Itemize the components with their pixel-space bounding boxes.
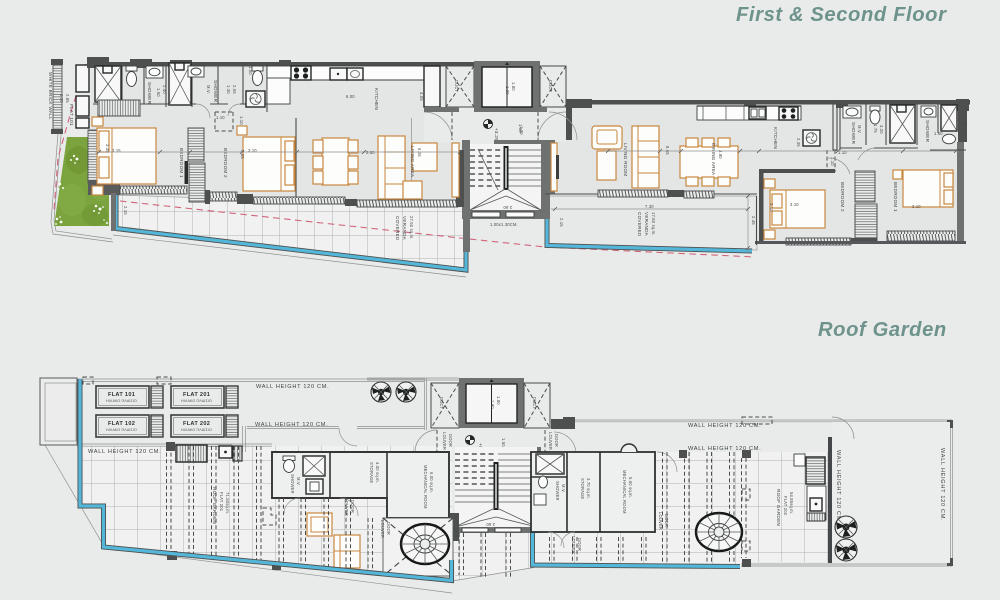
svg-text:SHOWER: SHOWER xyxy=(213,80,218,103)
svg-text:LOUVER: LOUVER xyxy=(548,432,553,450)
svg-text:1.30: 1.30 xyxy=(226,85,231,94)
svg-text:BEDROOM 1: BEDROOM 1 xyxy=(893,182,898,212)
svg-text:WALL HEIGHT 120 CM.: WALL HEIGHT 120 CM. xyxy=(939,448,945,521)
svg-text:5.60 sq.m.: 5.60 sq.m. xyxy=(628,477,633,498)
svg-text:DUCT: DUCT xyxy=(548,80,553,92)
svg-text:2.40: 2.40 xyxy=(162,85,167,94)
svg-text:LOUVER: LOUVER xyxy=(442,432,447,450)
svg-text:WALL HEIGHT 120 CM.: WALL HEIGHT 120 CM. xyxy=(256,384,329,390)
svg-text:2.85: 2.85 xyxy=(65,94,70,103)
svg-text:FLAT 202: FLAT 202 xyxy=(783,496,788,516)
svg-text:Roof Garden: Roof Garden xyxy=(818,319,947,341)
svg-text:4.05: 4.05 xyxy=(419,92,424,101)
svg-text:WALL HEIGHT 120 CM.: WALL HEIGHT 120 CM. xyxy=(255,422,328,428)
svg-text:ΗΛΙΑΚΟ ΠΛΑΙΣΙΟ: ΗΛΙΑΚΟ ΠΛΑΙΣΙΟ xyxy=(181,428,212,432)
svg-text:ROOF GARDEN: ROOF GARDEN xyxy=(776,489,781,526)
svg-text:+3.25: +3.25 xyxy=(494,128,499,141)
svg-text:1.50: 1.50 xyxy=(501,438,506,447)
svg-text:KITCHEN: KITCHEN xyxy=(374,88,379,110)
svg-text:DUCT: DUCT xyxy=(439,397,444,409)
svg-text:1.00: 1.00 xyxy=(248,66,253,75)
svg-text:1.80: 1.80 xyxy=(511,82,516,91)
svg-text:6.00: 6.00 xyxy=(346,94,355,99)
svg-text:SHOWER: SHOWER xyxy=(290,474,295,494)
svg-text:DUCT: DUCT xyxy=(454,80,459,92)
svg-text:1.10: 1.10 xyxy=(239,116,244,125)
svg-text:8.65: 8.65 xyxy=(665,146,670,155)
svg-text:MECHANICAL ROOM: MECHANICAL ROOM xyxy=(423,465,428,509)
svg-text:27.50 sq.m.: 27.50 sq.m. xyxy=(409,216,414,240)
svg-text:3.10: 3.10 xyxy=(769,203,774,212)
svg-text:FLAT 201: FLAT 201 xyxy=(219,492,224,512)
svg-text:7.30: 7.30 xyxy=(645,204,654,209)
svg-text:71.50sq.m.: 71.50sq.m. xyxy=(225,492,230,514)
svg-text:2.60: 2.60 xyxy=(486,522,495,527)
svg-text:3.10: 3.10 xyxy=(790,202,799,207)
svg-text:WALL HEIGHT 120 CM.: WALL HEIGHT 120 CM. xyxy=(88,449,161,455)
svg-text:First & Second Floor: First & Second Floor xyxy=(736,4,947,26)
svg-text:LIVING ROOM: LIVING ROOM xyxy=(623,143,628,176)
svg-text:FLAT 201: FLAT 201 xyxy=(183,392,210,398)
svg-text:2.65: 2.65 xyxy=(232,85,237,94)
svg-text:2.15: 2.15 xyxy=(123,206,128,215)
svg-text:ΗΛΙΑΚΟ ΠΛΑΙΣΙΟ: ΗΛΙΑΚΟ ΠΛΑΙΣΙΟ xyxy=(181,399,212,403)
svg-text:SHOWER: SHOWER xyxy=(851,122,856,145)
svg-text:54.85sq.m.: 54.85sq.m. xyxy=(789,492,794,514)
svg-text:ΗΛΙΑΚΟ ΠΛΑΙΣΙΟ: ΗΛΙΑΚΟ ΠΛΑΙΣΙΟ xyxy=(106,428,137,432)
svg-text:LOUVER: LOUVER xyxy=(380,520,385,538)
svg-text:1.35: 1.35 xyxy=(963,118,968,127)
svg-text:FLAT 101: FLAT 101 xyxy=(108,392,135,398)
svg-text:2.15: 2.15 xyxy=(559,218,564,227)
svg-text:3.90: 3.90 xyxy=(718,150,723,159)
svg-text:M.V.: M.V. xyxy=(206,85,211,94)
svg-text:1.00x1.30CM.: 1.00x1.30CM. xyxy=(490,222,518,227)
svg-text:BEDROOM 1: BEDROOM 1 xyxy=(179,148,184,178)
svg-text:M.V.: M.V. xyxy=(561,484,566,493)
svg-text:WALL HEIGHT 120 CM.: WALL HEIGHT 120 CM. xyxy=(688,423,761,429)
svg-text:3.10: 3.10 xyxy=(912,204,921,209)
svg-text:M.V.: M.V. xyxy=(857,125,862,134)
svg-text:3.20: 3.20 xyxy=(879,125,884,134)
svg-text:WALL HEIGHT 120 CM.: WALL HEIGHT 120 CM. xyxy=(835,450,841,523)
svg-text:DOOR: DOOR xyxy=(554,434,559,447)
svg-text:1.60: 1.60 xyxy=(934,131,943,136)
svg-text:VERANDA: VERANDA xyxy=(402,216,407,241)
svg-text:STORAGE: STORAGE xyxy=(369,462,374,483)
svg-text:1.30: 1.30 xyxy=(519,126,524,135)
svg-text:STORAGE: STORAGE xyxy=(580,478,585,499)
svg-text:1.80: 1.80 xyxy=(496,396,501,405)
svg-text:SHOWER: SHOWER xyxy=(925,120,930,143)
svg-text:BEDROOM 2: BEDROOM 2 xyxy=(840,182,845,212)
svg-text:LOUVER: LOUVER xyxy=(571,536,576,554)
svg-text:2.45: 2.45 xyxy=(751,216,756,225)
svg-text:COVERED: COVERED xyxy=(395,216,400,241)
svg-text:KITCHEN: KITCHEN xyxy=(773,127,778,149)
svg-text:LIVING AREA: LIVING AREA xyxy=(410,146,415,178)
svg-text:DOOR: DOOR xyxy=(577,538,582,551)
svg-text:1.90: 1.90 xyxy=(505,86,510,95)
svg-text:DUCT: DUCT xyxy=(532,397,537,409)
svg-text:1.50: 1.50 xyxy=(156,88,161,97)
svg-text:6.05: 6.05 xyxy=(417,148,422,157)
svg-text:FLAT 102: FLAT 102 xyxy=(108,421,135,427)
svg-text:DOOR: DOOR xyxy=(448,434,453,447)
svg-text:1.75: 1.75 xyxy=(873,124,878,133)
svg-text:COVERED: COVERED xyxy=(637,212,642,237)
svg-text:6.00 sq.m.: 6.00 sq.m. xyxy=(429,472,434,493)
svg-text:M.V.: M.V. xyxy=(296,477,301,486)
svg-text:17.80 sq.m.: 17.80 sq.m. xyxy=(651,212,656,236)
svg-text:5.80: 5.80 xyxy=(366,150,375,155)
svg-text:4.00 sq.m.: 4.00 sq.m. xyxy=(375,462,380,483)
svg-text:DINING AREA: DINING AREA xyxy=(711,143,716,176)
svg-text:DOOR: DOOR xyxy=(386,522,391,535)
svg-text:2.35: 2.35 xyxy=(796,138,801,147)
svg-text:2.60: 2.60 xyxy=(503,205,512,210)
svg-text:SHOWER: SHOWER xyxy=(555,481,560,501)
svg-text:FLAT 202: FLAT 202 xyxy=(183,421,210,427)
svg-text:1.20: 1.20 xyxy=(59,94,64,103)
svg-text:FLAT 101: FLAT 101 xyxy=(69,104,74,126)
svg-text:1.90: 1.90 xyxy=(490,400,495,409)
svg-text:VERANDA: VERANDA xyxy=(644,212,649,237)
svg-text:ΗΛΙΑΚΟ ΠΛΑΙΣΙΟ: ΗΛΙΑΚΟ ΠΛΑΙΣΙΟ xyxy=(106,399,137,403)
svg-text:WHITE BRICK WALL: WHITE BRICK WALL xyxy=(48,72,53,120)
svg-text:SHOWER: SHOWER xyxy=(147,82,152,105)
svg-text:BEDROOM 2: BEDROOM 2 xyxy=(223,148,228,178)
svg-text:3.70 sq.m.: 3.70 sq.m. xyxy=(586,478,591,499)
svg-text:MECHANICAL ROOM: MECHANICAL ROOM xyxy=(622,470,627,514)
svg-text:1.10: 1.10 xyxy=(216,115,225,120)
